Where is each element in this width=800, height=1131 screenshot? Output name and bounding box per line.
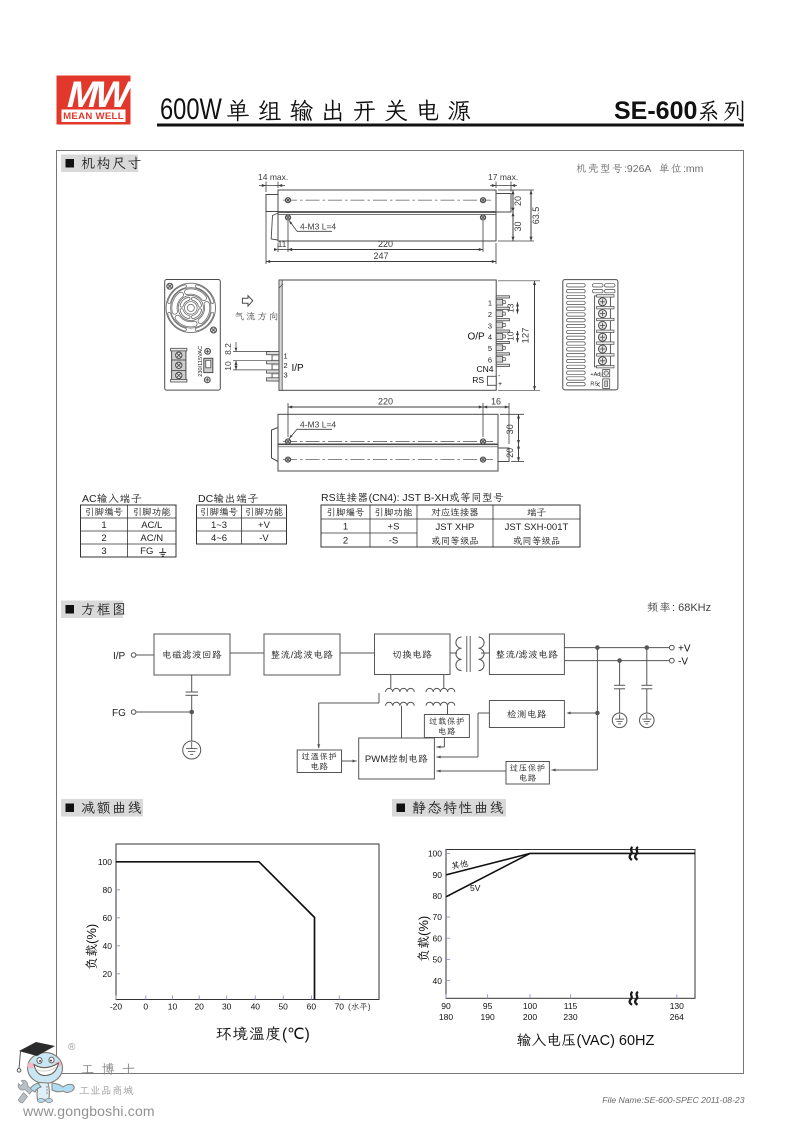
svg-text:8.2: 8.2 [223, 343, 233, 355]
svg-text:-20: -20 [110, 1002, 123, 1012]
svg-text:2: 2 [488, 310, 492, 319]
svg-text:PWM: PWM [365, 754, 388, 765]
svg-text:(VAC) 60HZ: (VAC) 60HZ [577, 1033, 655, 1049]
svg-text:+V: +V [678, 644, 691, 655]
svg-text:17 max.: 17 max. [488, 172, 518, 182]
svg-text:60: 60 [433, 933, 443, 943]
svg-text:1: 1 [488, 299, 492, 308]
svg-text:30: 30 [222, 1002, 232, 1012]
svg-text:I/P: I/P [113, 651, 126, 662]
svg-text:4-M3 L=4: 4-M3 L=4 [300, 222, 336, 232]
svg-text:-S: -S [389, 536, 399, 547]
svg-text:/: / [291, 650, 294, 661]
svg-text:11: 11 [278, 239, 287, 249]
svg-text:4-M3 L=4: 4-M3 L=4 [300, 420, 336, 430]
svg-text:16: 16 [491, 397, 501, 407]
svg-text:20: 20 [513, 196, 523, 206]
svg-text:DC: DC [198, 493, 214, 505]
svg-text:(%): (%) [84, 924, 99, 944]
svg-text:230: 230 [563, 1012, 577, 1022]
svg-text:+V: +V [258, 520, 271, 531]
svg-text:(: ( [348, 1002, 351, 1012]
svg-text:FG: FG [112, 708, 126, 719]
svg-text:2: 2 [343, 536, 348, 547]
svg-text:4~6: 4~6 [211, 533, 227, 544]
svg-text:1: 1 [101, 520, 106, 531]
svg-text:80: 80 [103, 885, 113, 895]
svg-text:63.5: 63.5 [531, 207, 541, 225]
svg-text:90: 90 [433, 870, 443, 880]
svg-text:(%): (%) [416, 916, 431, 936]
svg-text:70: 70 [335, 1002, 345, 1012]
svg-text:1~3: 1~3 [211, 520, 227, 531]
svg-text:MEAN WELL: MEAN WELL [63, 111, 124, 122]
svg-text:20: 20 [505, 448, 515, 458]
svg-text:JST SXH-001T: JST SXH-001T [505, 522, 569, 533]
svg-text:SE-600: SE-600 [614, 97, 697, 125]
svg-text:): ) [368, 1002, 371, 1012]
svg-text:130: 130 [670, 1001, 684, 1011]
svg-text:14 max.: 14 max. [258, 172, 288, 182]
svg-text:5V: 5V [470, 883, 481, 893]
svg-text:-: - [498, 373, 501, 380]
svg-text:50: 50 [278, 1002, 288, 1012]
svg-text:JST XHP: JST XHP [436, 522, 475, 533]
svg-text:O/P: O/P [468, 332, 486, 343]
svg-text:100: 100 [523, 1001, 537, 1011]
svg-text:180: 180 [439, 1012, 453, 1022]
svg-text:115: 115 [564, 1001, 578, 1011]
svg-text::mm: :mm [683, 163, 704, 175]
svg-text:30: 30 [513, 221, 523, 231]
svg-text:RS: RS [472, 375, 484, 385]
svg-text:(℃): (℃) [282, 1026, 310, 1043]
svg-text:www.gongboshi.com: www.gongboshi.com [22, 1103, 155, 1119]
svg-text:0: 0 [143, 1002, 148, 1012]
svg-text:AC/N: AC/N [140, 533, 163, 544]
svg-text:40: 40 [103, 941, 113, 951]
svg-text:AC: AC [82, 493, 97, 505]
svg-text:3: 3 [488, 321, 492, 330]
svg-text:100: 100 [428, 849, 442, 859]
svg-text:20: 20 [103, 969, 113, 979]
svg-text:+Adj: +Adj [590, 372, 601, 378]
svg-text:264: 264 [670, 1012, 684, 1022]
svg-text:20: 20 [194, 1002, 204, 1012]
svg-text:-V: -V [678, 657, 688, 668]
svg-text:CN4: CN4 [476, 364, 493, 374]
svg-text:10: 10 [223, 361, 233, 371]
svg-text:247: 247 [373, 251, 388, 261]
svg-text:5: 5 [488, 344, 492, 353]
svg-text:40: 40 [433, 976, 443, 986]
svg-text:220: 220 [378, 397, 393, 407]
svg-text:+S: +S [388, 522, 400, 533]
svg-text:2: 2 [284, 361, 288, 370]
svg-text:2: 2 [101, 533, 106, 544]
svg-text:70: 70 [433, 912, 443, 922]
svg-text:40: 40 [251, 1002, 261, 1012]
svg-text:: 68KHz: : 68KHz [672, 602, 711, 614]
svg-text:60: 60 [103, 913, 113, 923]
svg-text:(CN4): JST B-XH: (CN4): JST B-XH [369, 492, 449, 504]
svg-text:1: 1 [343, 522, 348, 533]
svg-text:60: 60 [307, 1002, 317, 1012]
svg-text:+: + [498, 381, 502, 388]
svg-text:3: 3 [284, 371, 288, 380]
svg-text:-V: -V [259, 533, 269, 544]
svg-text:50: 50 [433, 955, 443, 965]
svg-text:30: 30 [505, 424, 515, 434]
svg-text:95: 95 [483, 1001, 493, 1011]
svg-text:File Name:SE-600-SPEC 2011-0: File Name:SE-600-SPEC 2011-08-23 [602, 1095, 744, 1105]
svg-text:127: 127 [521, 328, 532, 344]
svg-text:200: 200 [523, 1012, 537, 1022]
svg-text:1: 1 [284, 352, 288, 361]
svg-text:90: 90 [441, 1001, 451, 1011]
svg-text:/: / [516, 650, 519, 661]
svg-text:®: ® [68, 1042, 76, 1053]
svg-text:600W: 600W [160, 92, 222, 125]
svg-text:10: 10 [168, 1002, 178, 1012]
svg-text:80: 80 [433, 891, 443, 901]
svg-text::926A: :926A [624, 163, 651, 175]
svg-text:I/P: I/P [292, 363, 305, 374]
svg-text:AC/L: AC/L [141, 520, 162, 531]
svg-text:FG: FG [140, 546, 153, 557]
svg-text:3: 3 [101, 546, 106, 557]
svg-text:220: 220 [378, 239, 393, 249]
svg-text:13: 13 [506, 303, 516, 313]
svg-text:100: 100 [98, 857, 112, 867]
svg-text:4: 4 [488, 333, 492, 342]
svg-text:190: 190 [481, 1012, 495, 1022]
svg-text:10: 10 [506, 331, 516, 341]
svg-text:RS: RS [321, 492, 336, 504]
svg-text:230/115VAC: 230/115VAC [198, 346, 204, 377]
